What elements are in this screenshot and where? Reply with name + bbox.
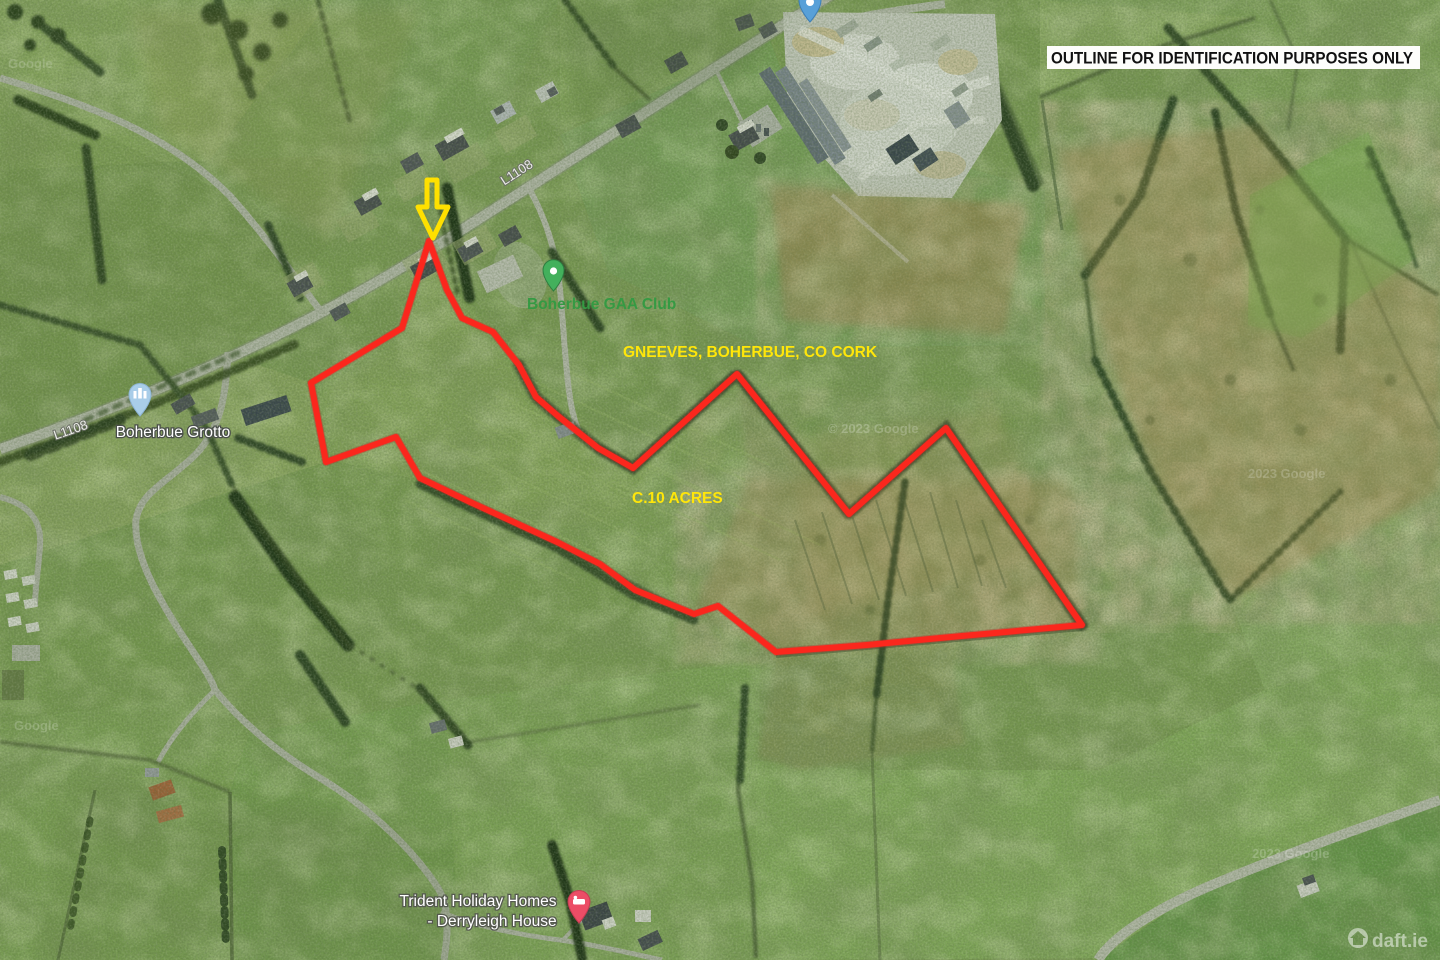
svg-text:Boherbue GAA Club: Boherbue GAA Club xyxy=(527,296,676,313)
svg-text:2023 Google: 2023 Google xyxy=(1252,846,1329,861)
svg-text:C.10 ACRES: C.10 ACRES xyxy=(632,490,723,507)
svg-text:Trident Holiday Homes: Trident Holiday Homes xyxy=(399,893,556,910)
svg-text:Google: Google xyxy=(8,56,53,71)
svg-text:2023 Google: 2023 Google xyxy=(1248,466,1325,481)
svg-text:Google: Google xyxy=(14,718,59,733)
svg-text:© 2023 Google: © 2023 Google xyxy=(828,421,919,436)
svg-text:OUTLINE FOR IDENTIFICATION PUR: OUTLINE FOR IDENTIFICATION PURPOSES ONLY xyxy=(1051,50,1413,68)
svg-text:- Derryleigh House: - Derryleigh House xyxy=(427,913,556,930)
svg-text:daft.ie: daft.ie xyxy=(1372,931,1428,952)
svg-text:GNEEVES, BOHERBUE, CO CORK: GNEEVES, BOHERBUE, CO CORK xyxy=(623,344,878,361)
svg-text:Boherbue Grotto: Boherbue Grotto xyxy=(116,424,231,441)
